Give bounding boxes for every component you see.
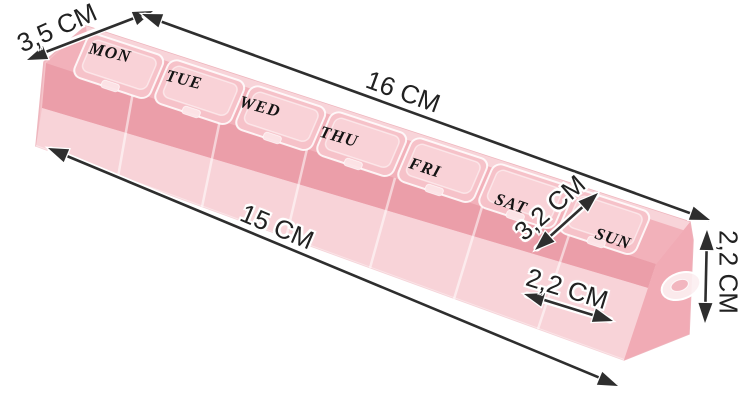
dim-label-height: 2,2 CM bbox=[713, 230, 744, 314]
product-photo: 3,5 CM 16 CM 15 CM 3,2 CM 2,2 CM 2,2 CM … bbox=[0, 0, 750, 401]
